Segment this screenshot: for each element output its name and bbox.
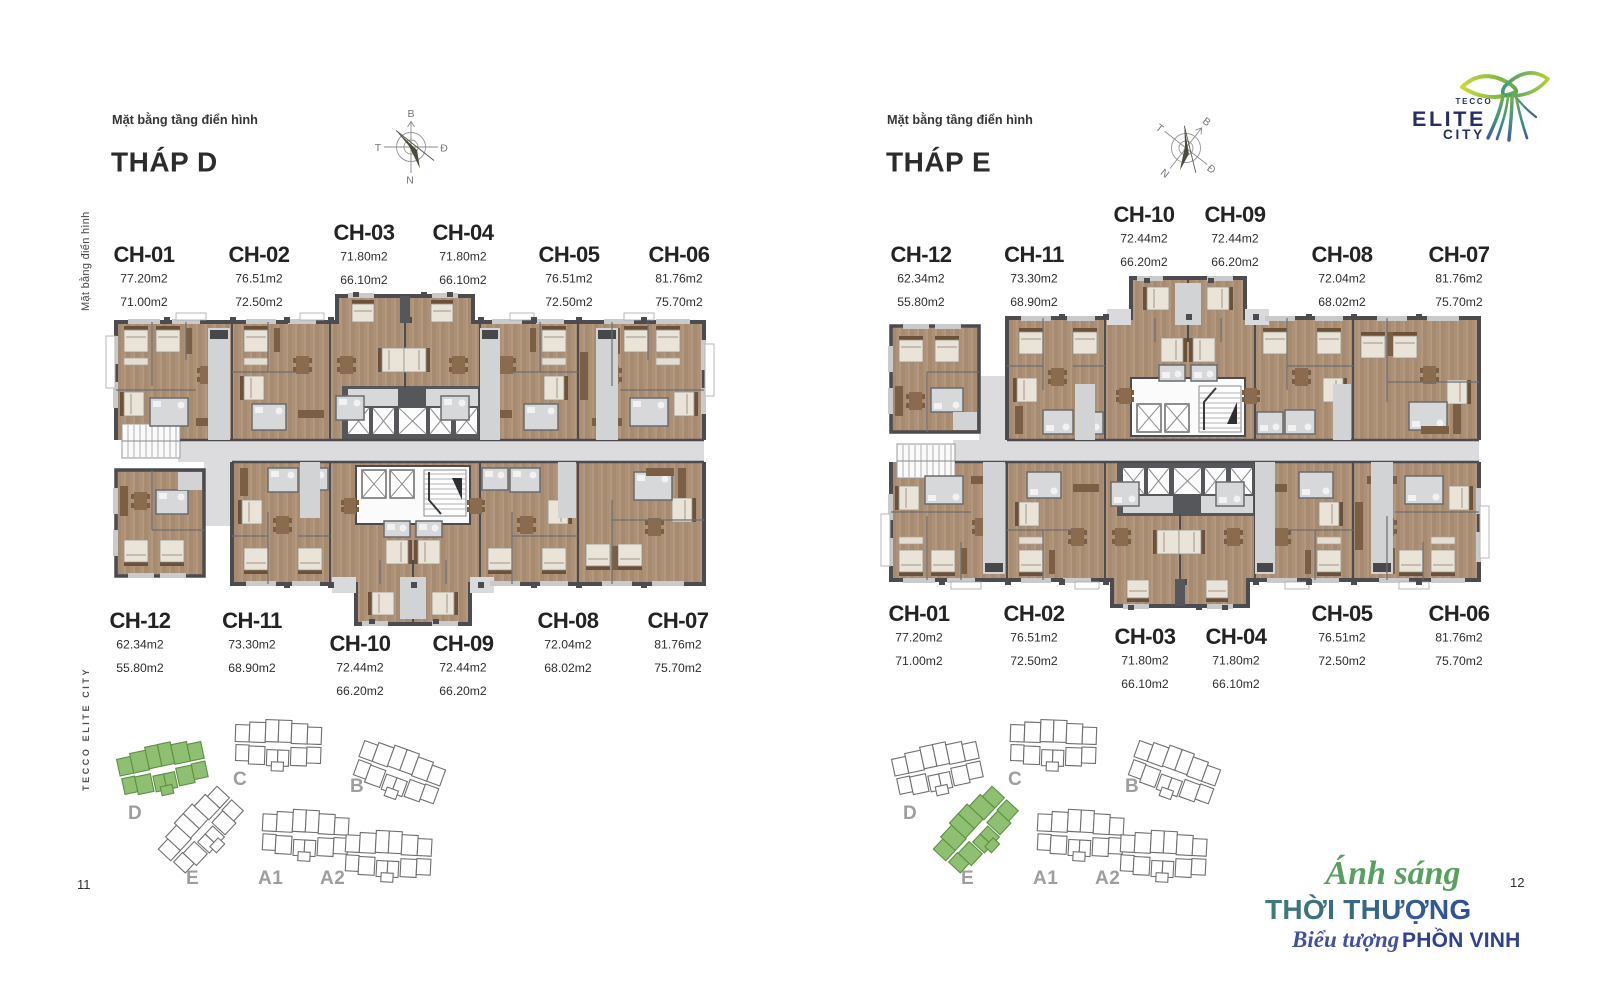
svg-text:CH-09: CH-09 (1204, 202, 1265, 227)
svg-text:C: C (1008, 769, 1022, 790)
svg-text:75.70m2: 75.70m2 (1435, 295, 1483, 309)
svg-text:CH-02: CH-02 (1003, 601, 1064, 626)
svg-text:75.70m2: 75.70m2 (655, 295, 703, 309)
svg-text:71.80m2: 71.80m2 (340, 250, 388, 264)
svg-text:Mặt bằng tầng điển hình: Mặt bằng tầng điển hình (887, 112, 1033, 127)
svg-text:B: B (350, 776, 364, 797)
svg-text:CH-12: CH-12 (109, 608, 170, 633)
svg-text:CH-05: CH-05 (1311, 601, 1372, 626)
svg-text:55.80m2: 55.80m2 (897, 295, 945, 309)
svg-text:72.44m2: 72.44m2 (1120, 232, 1168, 246)
svg-text:66.20m2: 66.20m2 (1211, 255, 1259, 269)
svg-text:CH-08: CH-08 (537, 608, 598, 633)
svg-text:A1: A1 (258, 868, 283, 889)
svg-text:76.51m2: 76.51m2 (545, 272, 593, 286)
svg-text:CH-06: CH-06 (1428, 601, 1489, 626)
svg-text:CH-08: CH-08 (1311, 242, 1372, 267)
svg-text:11: 11 (77, 877, 91, 892)
svg-text:CH-07: CH-07 (647, 608, 708, 633)
svg-text:75.70m2: 75.70m2 (654, 661, 702, 675)
svg-text:66.10m2: 66.10m2 (439, 273, 487, 287)
svg-text:E: E (961, 868, 974, 889)
svg-text:68.02m2: 68.02m2 (544, 661, 592, 675)
svg-text:CH-11: CH-11 (222, 608, 282, 633)
svg-text:55.80m2: 55.80m2 (116, 661, 164, 675)
svg-text:CH-04: CH-04 (1205, 624, 1267, 649)
svg-text:Biểu tượng: Biểu tượng (1291, 927, 1399, 952)
svg-text:E: E (186, 868, 199, 889)
svg-text:CH-03: CH-03 (333, 220, 394, 245)
svg-text:THÁP E: THÁP E (886, 147, 991, 178)
svg-text:75.70m2: 75.70m2 (1435, 654, 1483, 668)
svg-text:72.44m2: 72.44m2 (336, 661, 384, 675)
svg-text:76.51m2: 76.51m2 (235, 272, 283, 286)
svg-text:12: 12 (1510, 875, 1524, 890)
svg-text:72.44m2: 72.44m2 (1211, 232, 1259, 246)
svg-text:68.90m2: 68.90m2 (228, 661, 276, 675)
svg-text:72.50m2: 72.50m2 (1318, 654, 1366, 668)
svg-text:A1: A1 (1033, 868, 1058, 889)
svg-text:73.30m2: 73.30m2 (1010, 272, 1058, 286)
svg-text:72.04m2: 72.04m2 (1318, 272, 1366, 286)
svg-text:66.10m2: 66.10m2 (340, 273, 388, 287)
svg-text:Mặt bằng tầng điển hình: Mặt bằng tầng điển hình (112, 112, 258, 127)
svg-text:77.20m2: 77.20m2 (895, 631, 943, 645)
svg-text:D: D (903, 803, 917, 824)
svg-text:A2: A2 (1095, 868, 1120, 889)
svg-text:CH-01: CH-01 (888, 601, 949, 626)
svg-text:CH-12: CH-12 (890, 242, 951, 267)
svg-text:CH-01: CH-01 (113, 242, 174, 267)
svg-text:81.76m2: 81.76m2 (654, 638, 702, 652)
svg-text:72.50m2: 72.50m2 (1010, 654, 1058, 668)
svg-text:T: T (375, 142, 382, 154)
svg-text:D: D (128, 803, 142, 824)
svg-text:Mặt bằng điển hình: Mặt bằng điển hình (79, 211, 92, 311)
svg-text:TECCO ELITE CITY: TECCO ELITE CITY (81, 667, 91, 791)
svg-text:THỜI THƯỢNG: THỜI THƯỢNG (1265, 894, 1472, 925)
svg-text:A2: A2 (320, 868, 345, 889)
svg-text:B: B (1125, 776, 1139, 797)
svg-text:66.20m2: 66.20m2 (439, 684, 487, 698)
svg-text:76.51m2: 76.51m2 (1318, 631, 1366, 645)
svg-text:81.76m2: 81.76m2 (655, 272, 703, 286)
svg-text:C: C (233, 769, 247, 790)
svg-text:77.20m2: 77.20m2 (120, 272, 168, 286)
svg-text:68.90m2: 68.90m2 (1010, 295, 1058, 309)
svg-text:Ánh sáng: Ánh sáng (1323, 855, 1460, 892)
svg-text:72.44m2: 72.44m2 (439, 661, 487, 675)
svg-text:71.80m2: 71.80m2 (439, 250, 487, 264)
svg-text:66.10m2: 66.10m2 (1121, 677, 1169, 691)
svg-text:B: B (407, 108, 414, 120)
svg-text:81.76m2: 81.76m2 (1435, 272, 1483, 286)
svg-text:CH-05: CH-05 (538, 242, 599, 267)
svg-text:71.00m2: 71.00m2 (120, 295, 168, 309)
svg-text:Đ: Đ (440, 143, 448, 155)
svg-text:CH-10: CH-10 (329, 631, 390, 656)
svg-text:CH-02: CH-02 (228, 242, 289, 267)
svg-text:72.50m2: 72.50m2 (235, 295, 283, 309)
svg-text:62.34m2: 62.34m2 (897, 272, 945, 286)
svg-text:N: N (406, 175, 414, 187)
svg-text:81.76m2: 81.76m2 (1435, 631, 1483, 645)
svg-text:71.80m2: 71.80m2 (1212, 654, 1260, 668)
svg-text:73.30m2: 73.30m2 (228, 638, 276, 652)
svg-text:CH-10: CH-10 (1113, 202, 1174, 227)
svg-text:71.80m2: 71.80m2 (1121, 654, 1169, 668)
svg-text:CITY: CITY (1443, 127, 1485, 142)
svg-text:62.34m2: 62.34m2 (116, 638, 164, 652)
svg-text:CH-09: CH-09 (432, 631, 493, 656)
svg-text:76.51m2: 76.51m2 (1010, 631, 1058, 645)
svg-text:68.02m2: 68.02m2 (1318, 295, 1366, 309)
svg-text:PHỒN VINH: PHỒN VINH (1402, 928, 1520, 952)
svg-text:CH-07: CH-07 (1428, 242, 1489, 267)
svg-text:CH-03: CH-03 (1114, 624, 1175, 649)
svg-text:THÁP D: THÁP D (111, 147, 218, 178)
svg-text:66.10m2: 66.10m2 (1212, 677, 1260, 691)
svg-text:CH-11: CH-11 (1004, 242, 1064, 267)
svg-text:CH-06: CH-06 (648, 242, 709, 267)
svg-text:66.20m2: 66.20m2 (336, 684, 384, 698)
svg-text:66.20m2: 66.20m2 (1120, 255, 1168, 269)
svg-text:71.00m2: 71.00m2 (895, 654, 943, 668)
svg-text:72.50m2: 72.50m2 (545, 295, 593, 309)
svg-text:72.04m2: 72.04m2 (544, 638, 592, 652)
svg-text:CH-04: CH-04 (432, 220, 494, 245)
